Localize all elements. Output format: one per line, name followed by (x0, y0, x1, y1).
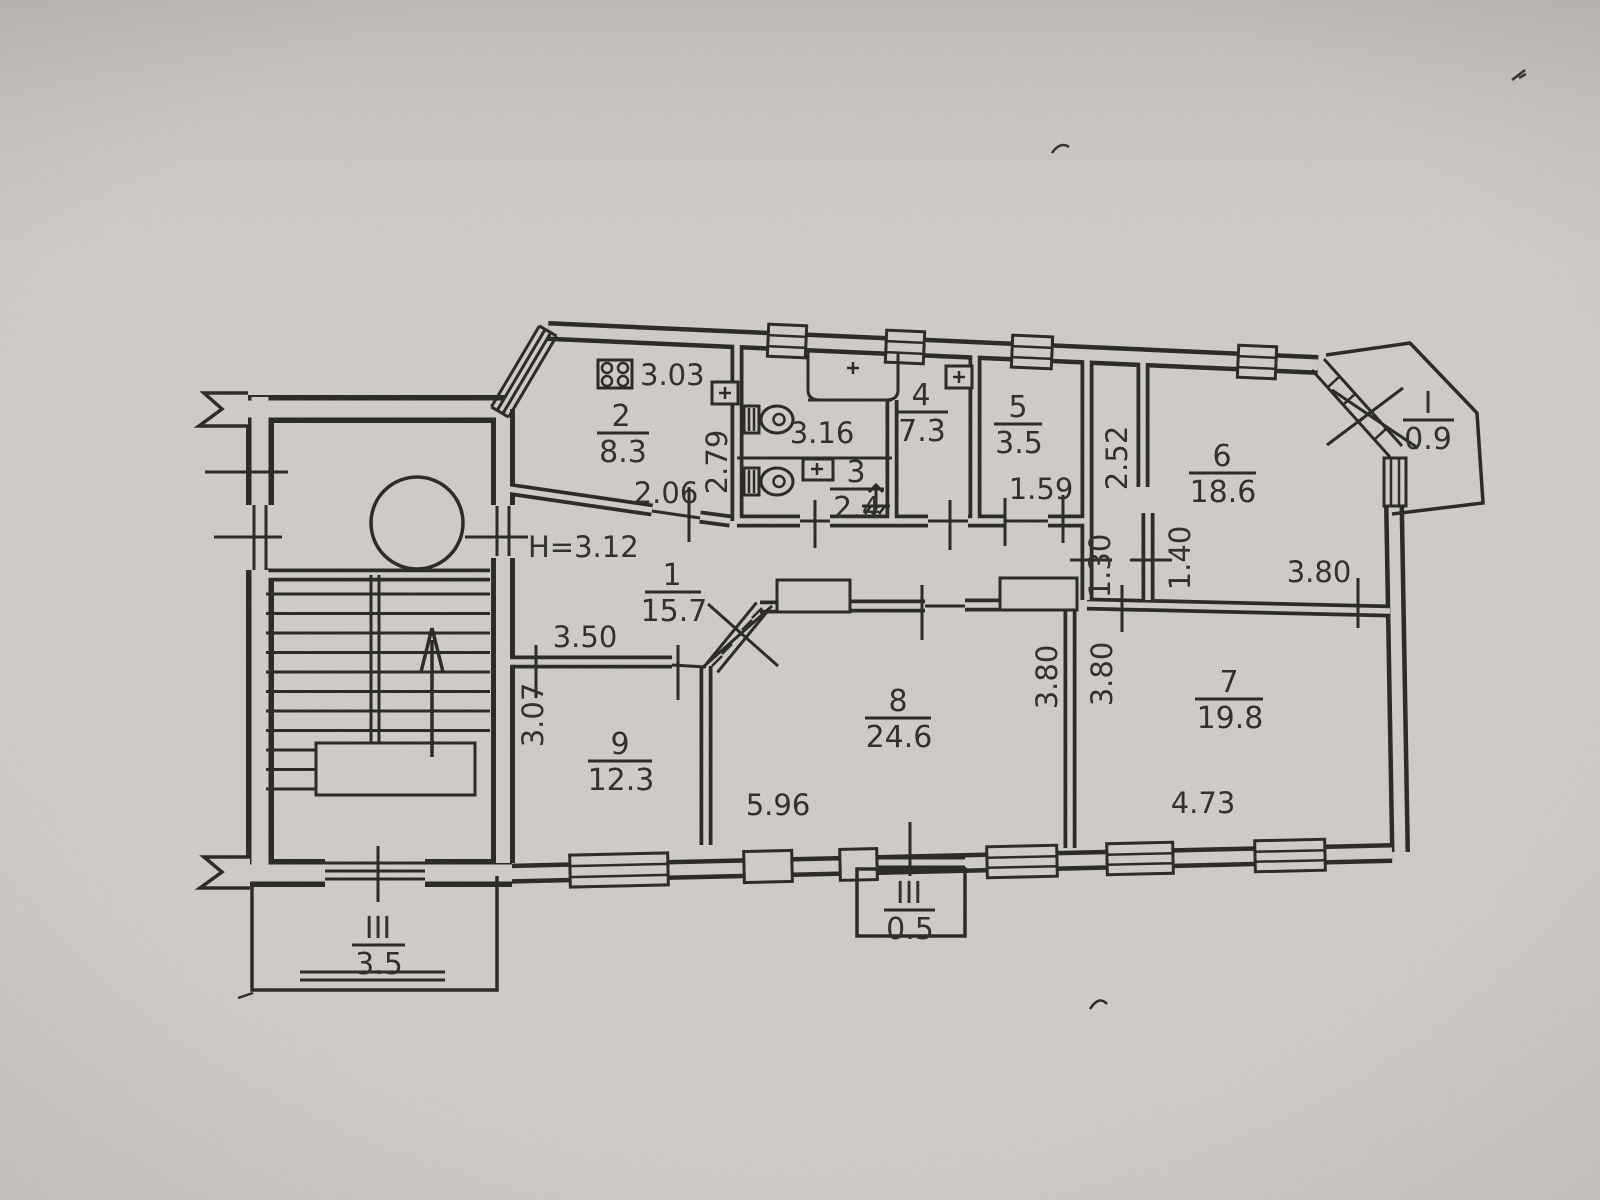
paper-grain (0, 0, 1600, 1200)
floor-plan-image: 1 15.7 2 8.3 3 2.4 4 7.3 5 3.5 6 18.6 7 … (0, 0, 1600, 1200)
scanned-floor-plan-page: 1 15.7 2 8.3 3 2.4 4 7.3 5 3.5 6 18.6 7 … (0, 0, 1600, 1200)
